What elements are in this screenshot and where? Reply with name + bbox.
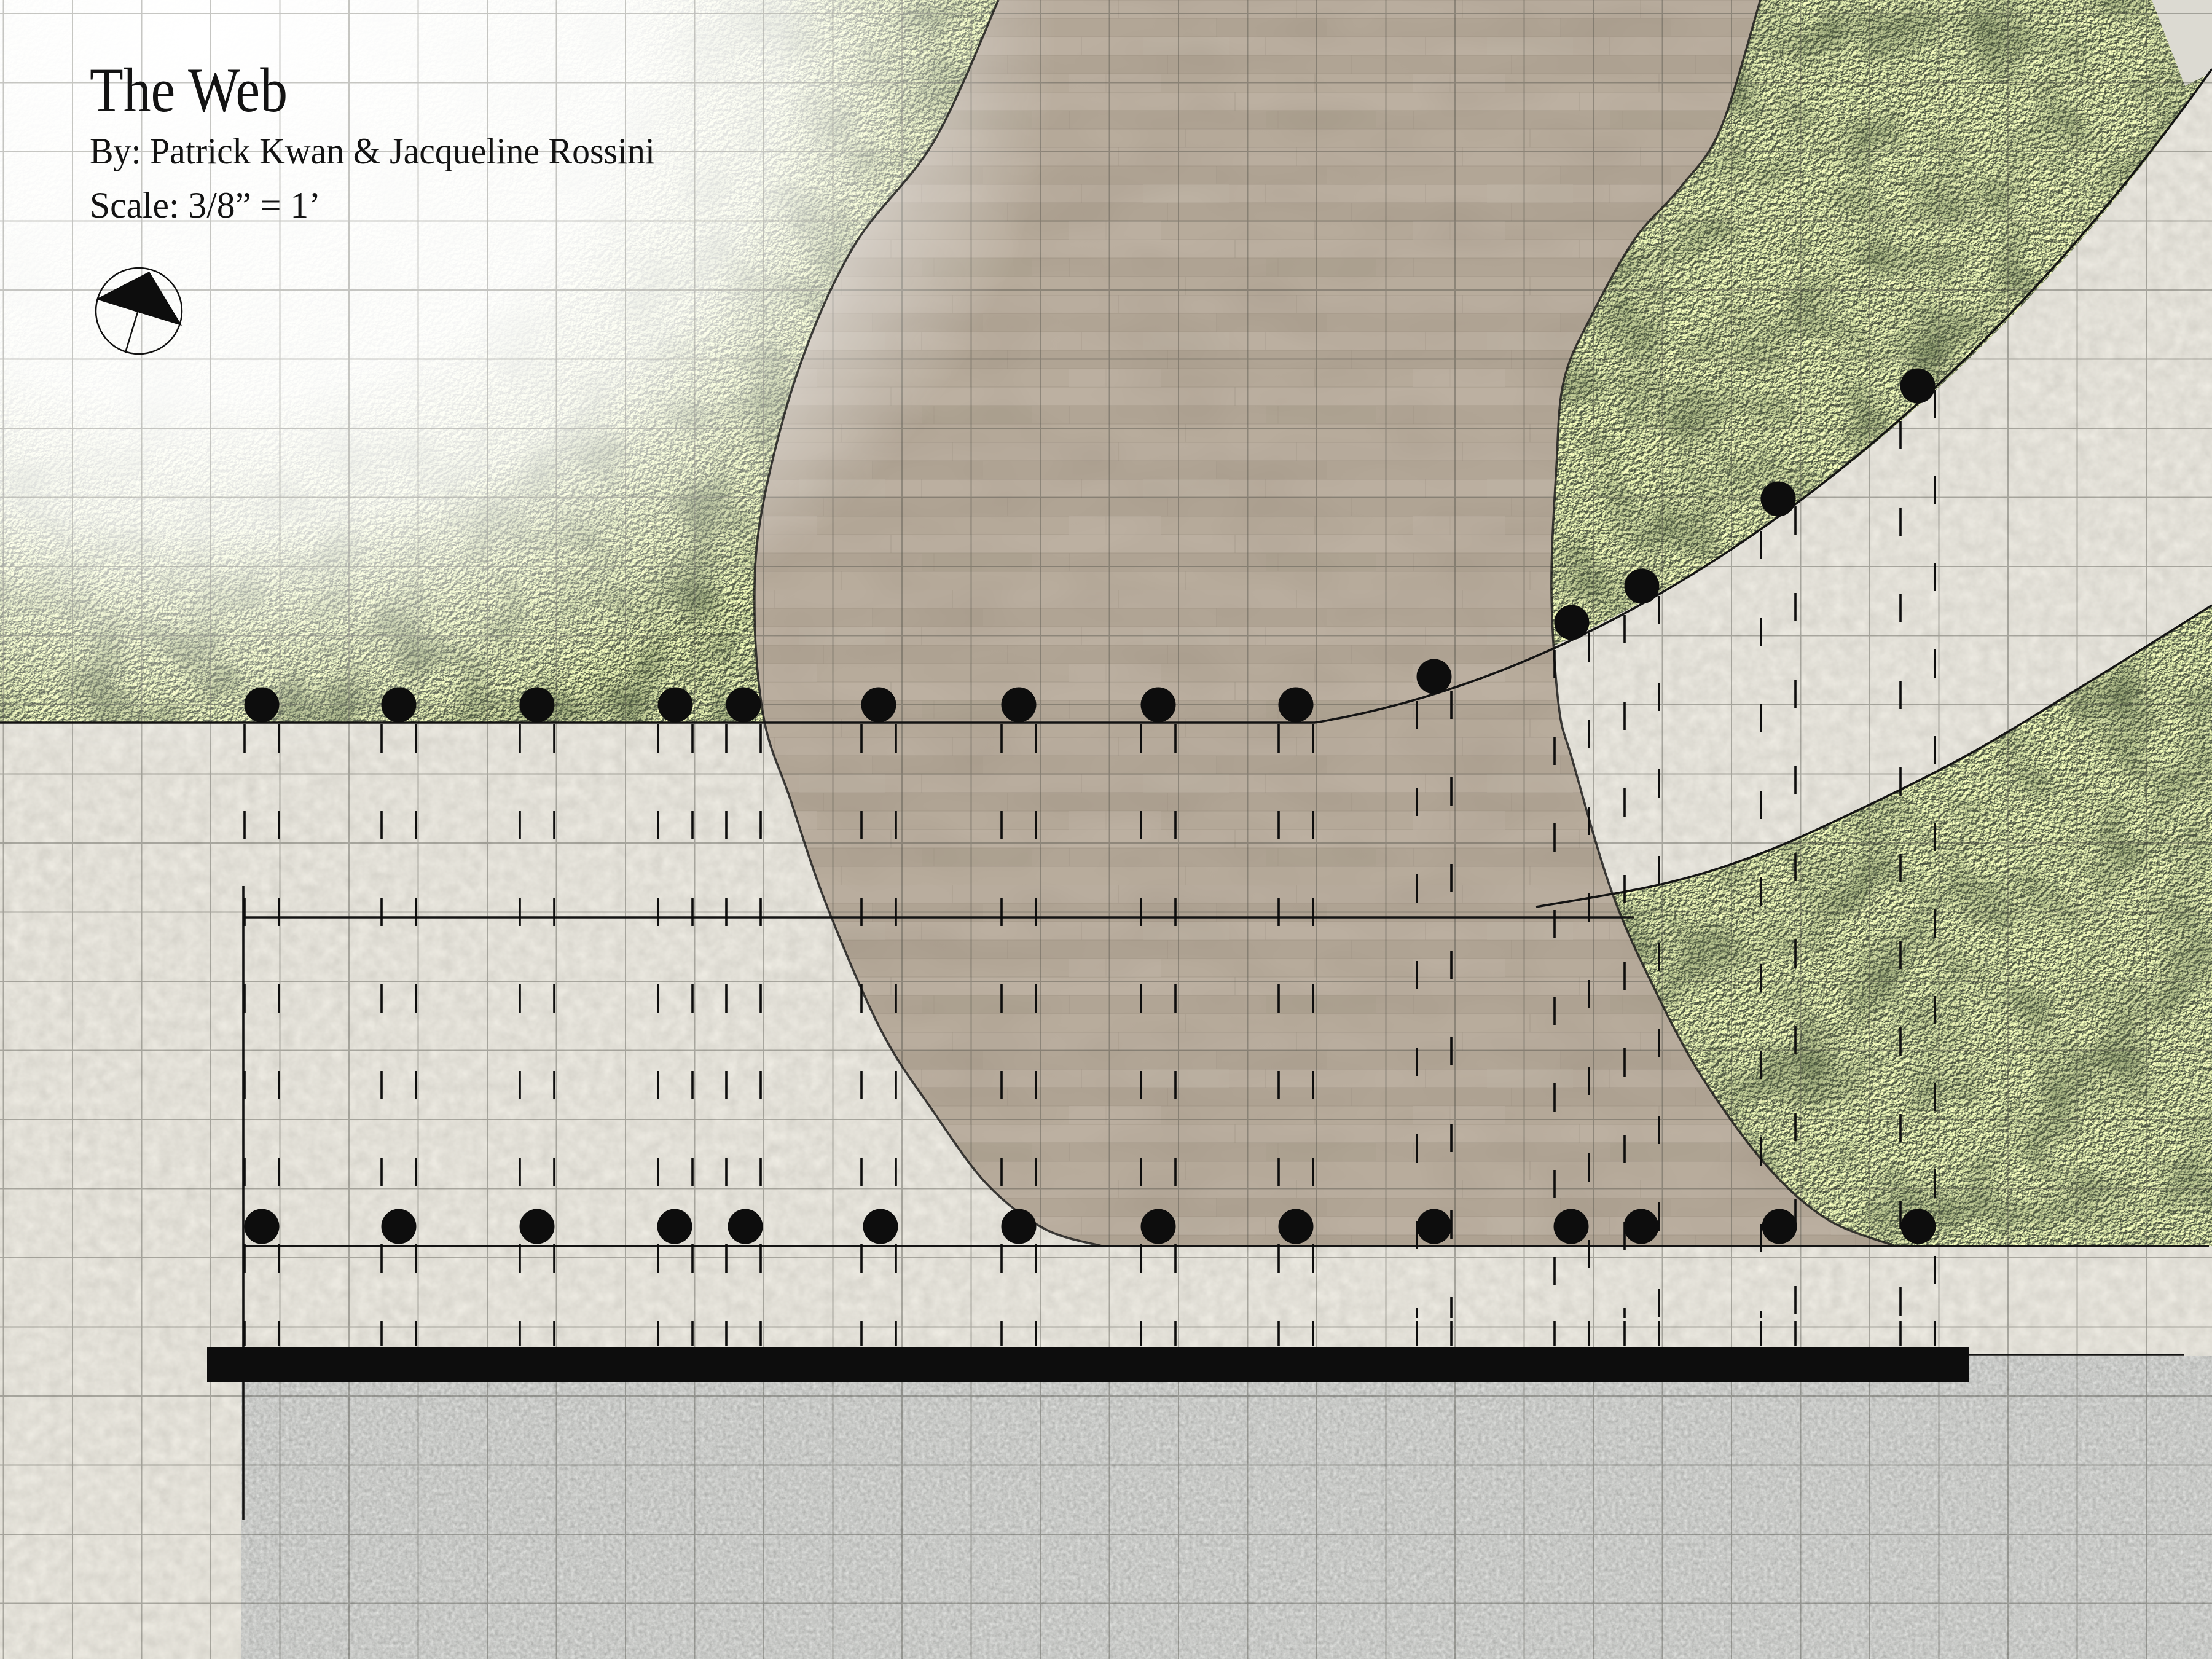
svg-text:Scale: 3/8” = 1’: Scale: 3/8” = 1’ — [90, 185, 321, 226]
svg-text:The Web: The Web — [90, 55, 288, 125]
svg-text:By: Patrick Kwan & Jacqueline: By: Patrick Kwan & Jacqueline Rossini — [90, 131, 655, 171]
